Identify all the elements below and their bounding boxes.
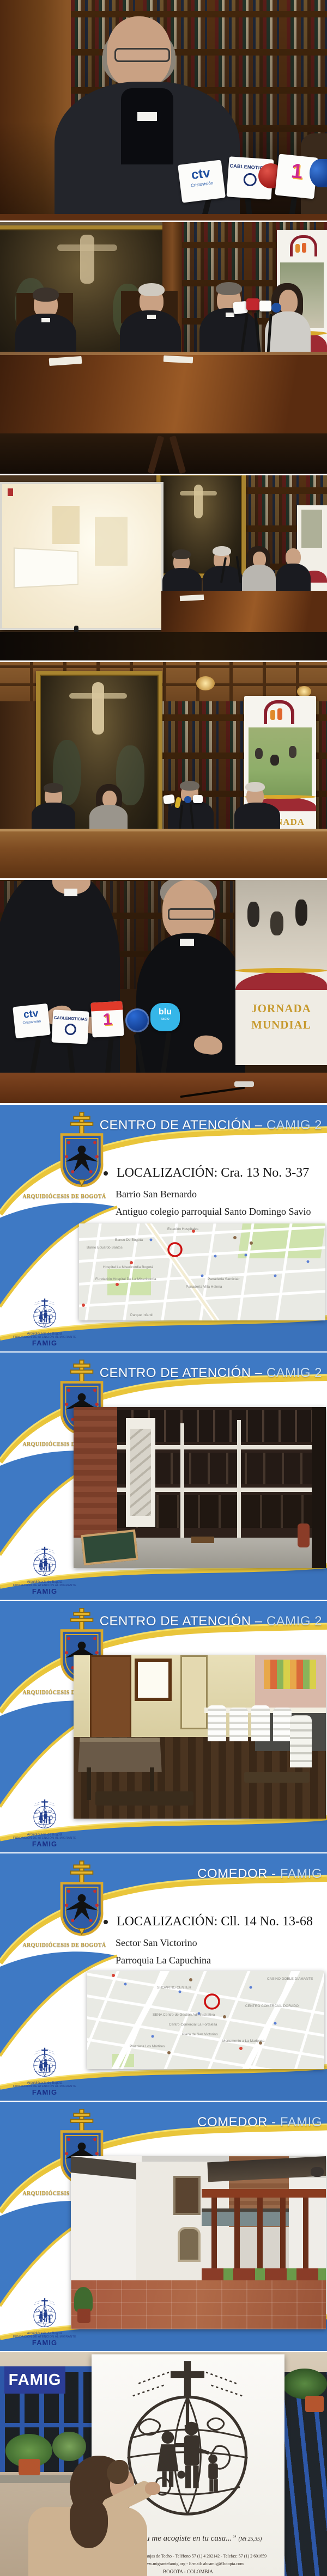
slide-comedor-patio: ARQUIDIÓCESIS DE BOGOTÁ COMEDOR - FAMIG [0,2102,327,2351]
interior-photo [74,1655,326,1819]
bench [95,1791,193,1806]
colegio-line: Antiguo colegio parroquial Santo Domingo… [116,1206,311,1217]
famig-globe-icon [29,2298,60,2329]
mic-flag-ctv: ctv Cristovisión [178,160,226,203]
photo-press-speaker: ctv Cristovisión CABLENOTICIAS 1 [0,0,327,221]
glasses-icon [168,908,215,920]
svg-text:Panadería Santiclair: Panadería Santiclair [208,1277,240,1281]
terracotta-pot [19,2459,40,2477]
mic-flag-ctv: ctv Cristovisión [13,1004,51,1038]
famig-logo: Arquidiócesis de Bogotá FUNDACIÓN DE ATE… [3,2047,86,2096]
remote [234,1081,254,1087]
svg-text:Panadería Villa Helena: Panadería Villa Helena [186,1285,222,1289]
slide-camig2-localizacion: ARQUIDIÓCESIS DE BOGOTÁ CENTRO DE ATENCI… [0,1105,327,1351]
photo-panel-table [0,222,327,474]
table-edge [0,1073,327,1103]
map-camig2: Estación Hospitales Hospital La Miserico… [79,1223,325,1320]
long-table [78,1737,161,1772]
famig-globe-icon [29,2047,60,2079]
clerical-collar [137,112,157,121]
famig-logo: Arquidiócesis de Bogotá FUNDACIÓN DE ATE… [3,1799,86,1848]
slide-title: COMEDOR - FAMIG [197,2115,322,2130]
patio-photo [71,2156,326,2329]
mic-flag-blu: blu radio [150,1003,180,1031]
bench [191,1537,214,1543]
barrel [298,1523,310,1547]
photo-wide-panel: JORNADA MUNDIAL [0,662,327,878]
planters-shrubs [202,2268,326,2280]
localizacion-line: LOCALIZACIÓN: Cra. 13 No. 3-37 [104,1166,309,1180]
slide-title: COMEDOR - FAMIG [197,1867,322,1882]
parroquia-line: Parroquia La Capuchina [116,1955,211,1966]
famig-logo: Arquidiócesis de Bogotá FUNDACIÓN DE ATE… [3,1298,86,1347]
svg-text:CASINO DOBLE DIAMANTE: CASINO DOBLE DIAMANTE [267,1977,313,1981]
door [90,1655,131,1746]
projection-screen [0,482,163,630]
mic-blue-windscreen [310,159,327,187]
door2 [180,1655,208,1729]
photo-projector-screen [0,475,327,660]
satellite-dish-icon [311,2167,324,2177]
mic-flag-canal1: 1 [90,1001,124,1038]
globe-icon [243,173,257,187]
globe-icon [64,1023,76,1035]
courtyard-photo [74,1407,326,1568]
barrio-line: Barrio San Bernardo [116,1189,197,1200]
famig-badge-label: FAMIG [9,2371,62,2389]
projected-table [14,547,78,588]
glasses-icon [114,48,170,62]
photo-famig-banner: FAMIG grante y tu me acogiste en tu casa… [0,2352,327,2576]
svg-text:SENA Centro de Gestión Adminis: SENA Centro de Gestión Administrativa [153,2013,215,2017]
svg-text:SHOPPING CENTER: SHOPPING CENTER [157,1986,191,1990]
svg-text:Hospital La Misericordia Bogot: Hospital La Misericordia Bogotá [103,1265,153,1269]
svg-text:CENTRO COMERCIAL DORADO: CENTRO COMERCIAL DORADO [245,2004,299,2008]
slide-title: CENTRO DE ATENCIÓN – CAMIG 2 [100,1366,322,1381]
chalkboard [81,1529,138,1565]
photo-closeup-mics: JORNADA MUNDIAL ctv Cristovisión CABLENO… [0,880,327,1103]
photo-collage: ctv Cristovisión CABLENOTICIAS 1 [0,0,327,2576]
slide-title: CENTRO DE ATENCIÓN – CAMIG 2 [100,1118,322,1133]
mic-flag-cablenoticias: CABLENOTICIAS [51,1009,89,1044]
localizacion-line: LOCALIZACIÓN: Cll. 14 No. 13-68 [104,1914,313,1929]
svg-text:Fundación Hospital De La Miser: Fundación Hospital De La Misericordia [95,1277,156,1281]
arcade-beam [202,2189,326,2198]
famig-badge: FAMIG [4,2366,65,2394]
mic-caracol-windscreen [125,1008,149,1032]
slide-camig2-courtyard: ARQUIDIÓCESIS DE BOGOTÁ CENTRO DE ATENCI… [0,1353,327,1600]
sector-line: Sector San Victorino [116,1937,197,1949]
long-table [0,829,327,878]
scaffold-pole [180,1423,184,1538]
svg-text:Banco De Bogotá: Banco De Bogotá [115,1238,143,1242]
svg-text:Plazoleta Los Mártires: Plazoleta Los Mártires [130,2045,165,2048]
jornada-banner: JORNADA MUNDIAL [235,880,327,1065]
slide-crest-mark [8,488,13,496]
famig-logo: Arquidiócesis de Bogotá FUNDACIÓN DE ATE… [3,2298,86,2347]
famig-globe-icon [29,1298,60,1330]
svg-text:Estación Hospitales: Estación Hospitales [167,1227,199,1231]
crest-caption: ARQUIDIÓCESIS DE BOGOTÁ [0,1942,129,1948]
svg-text:Centro Comercial La Fortaleza: Centro Comercial La Fortaleza [169,2023,217,2027]
window [135,1659,172,1701]
wall-posters [264,1660,316,1689]
slide-camig2-interior: ARQUIDIÓCESIS DE BOGOTÁ CENTRO DE ATENCI… [0,1601,327,1852]
old-window [173,2176,201,2215]
crucifix-painting [156,475,246,578]
famig-globe-icon [29,1799,60,1831]
famig-globe-icon [29,1546,60,1578]
map-comedor: SHOPPING CENTER SENA Centro de Gestión A… [87,1971,324,2069]
slide-comedor-localizacion: ARQUIDIÓCESIS DE BOGOTÁ COMEDOR - FAMIG … [0,1853,327,2101]
svg-text:Barrio Eduardo Santos: Barrio Eduardo Santos [87,1246,123,1250]
svg-text:Parque Infantil: Parque Infantil [130,1313,153,1317]
famig-logo: Arquidiócesis de Bogotá FUNDACIÓN DE ATE… [3,1546,86,1595]
svg-text:Monumento a La Mariposa: Monumento a La Mariposa [222,2039,265,2043]
ceiling-light-icon [196,676,215,690]
svg-text:Plaza de San Victorino: Plaza de San Victorino [182,2033,218,2036]
slide-title: CENTRO DE ATENCIÓN – CAMIG 2 [100,1614,322,1629]
hand [145,2482,160,2495]
plant [282,2369,327,2399]
terracotta-floor [71,2280,326,2329]
crest-caption: ARQUIDIÓCESIS DE BOGOTÁ [0,1194,129,1200]
jornada-text: JORNADA [235,1002,327,1015]
